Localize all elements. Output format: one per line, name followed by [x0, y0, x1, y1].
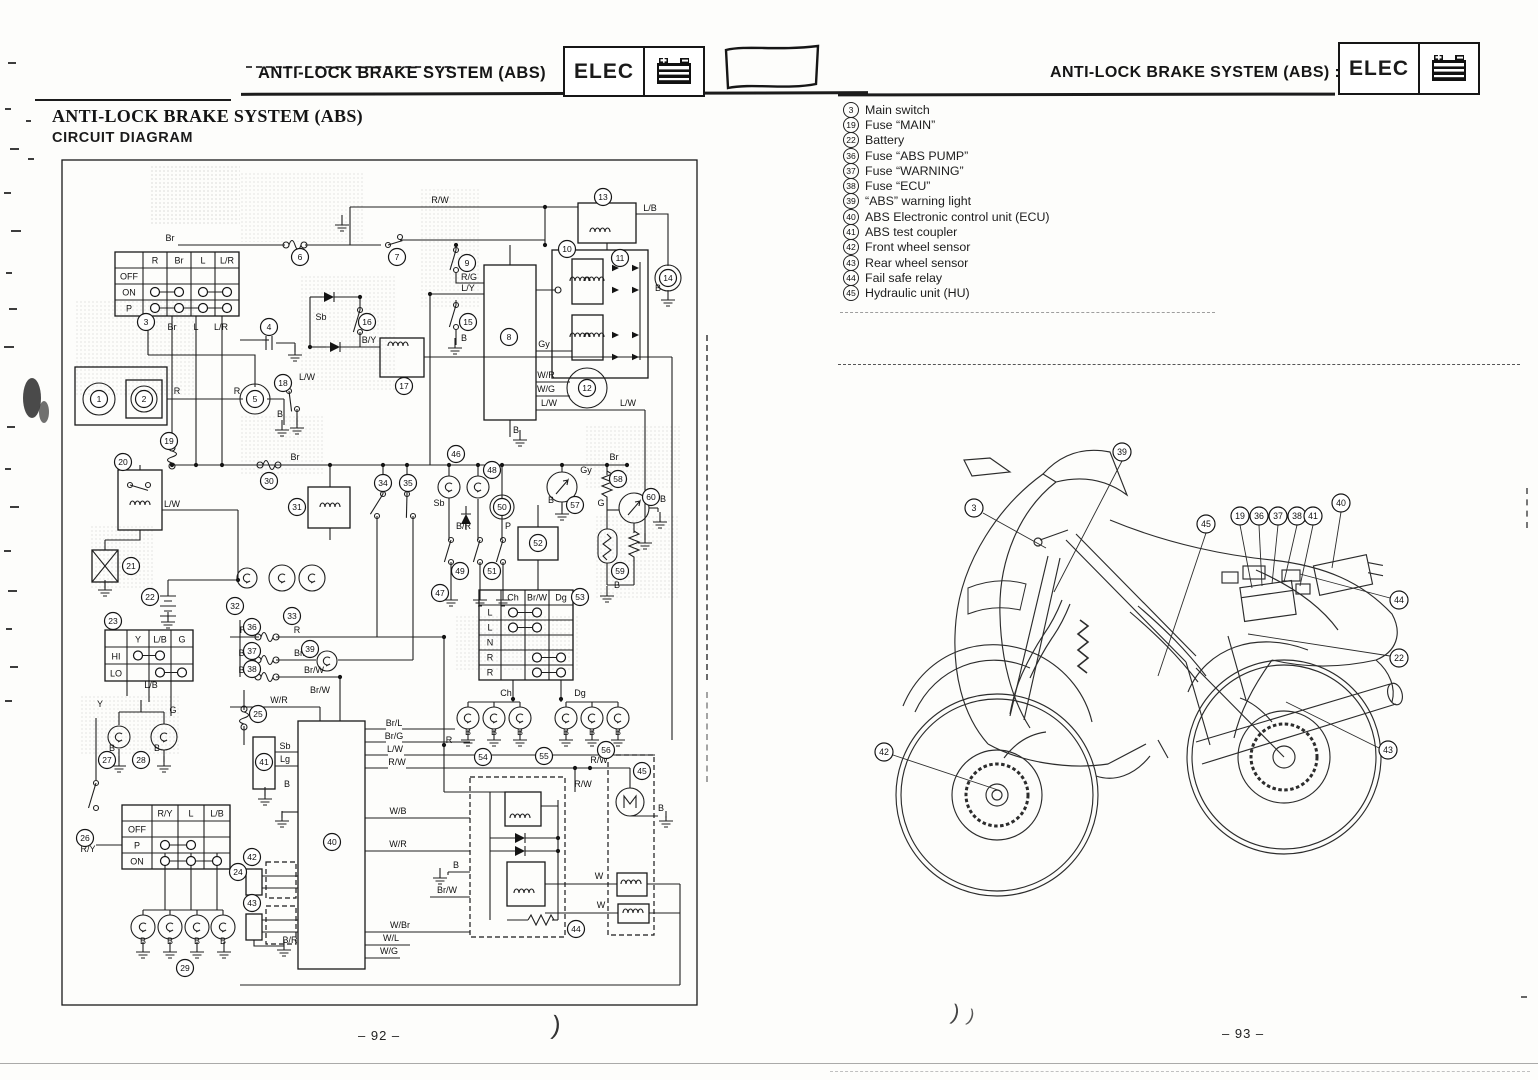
callout-25: 25: [250, 706, 267, 723]
wire-label: Br: [166, 233, 175, 243]
callout-26: 26: [77, 830, 94, 847]
svg-text:5: 5: [253, 394, 258, 404]
svg-text:L/B: L/B: [153, 635, 167, 645]
wire-label: R/G: [461, 272, 477, 282]
moto-callout-3: 3: [965, 499, 983, 517]
callout-8: 8: [501, 329, 518, 346]
callout-1: 1: [91, 391, 108, 408]
wire-label: W/R: [537, 370, 555, 380]
svg-text:L: L: [487, 608, 492, 618]
svg-text:32: 32: [230, 601, 240, 611]
wire-label: Br/W: [310, 685, 331, 695]
moto-callouts: 3934519363738414044224243: [875, 443, 1408, 761]
svg-text:39: 39: [1117, 447, 1127, 457]
legend-item: 45Hydraulic unit (HU): [843, 286, 1050, 301]
svg-text:54: 54: [478, 752, 488, 762]
separator-dashed: [838, 364, 1520, 365]
svg-text:44: 44: [1394, 595, 1404, 605]
right-header-rule: [838, 93, 1335, 96]
wire-label: L/W: [541, 398, 558, 408]
circuit-diagram: RBrLL/ROFFONPYL/BGHILOR/YLL/BOFFPONChBr/…: [55, 153, 705, 1013]
wire-label: B/Y: [362, 335, 377, 345]
svg-text:40: 40: [327, 837, 337, 847]
callout-24: 24: [230, 864, 247, 881]
legend-item-label: “ABS” warning light: [865, 194, 971, 208]
callout-37: 37: [244, 643, 261, 660]
svg-text:40: 40: [1336, 498, 1346, 508]
callout-34: 34: [375, 475, 392, 492]
wire-label: R/W: [431, 195, 449, 205]
left-header-title: ANTI-LOCK BRAKE SYSTEM (ABS): [258, 64, 546, 83]
callout-4: 4: [261, 319, 278, 336]
svg-text:R/Y: R/Y: [157, 809, 172, 819]
wire-label: R: [446, 735, 453, 745]
wire-label: B: [548, 495, 554, 505]
moto-callout-36: 36: [1250, 507, 1268, 525]
wire-label: L/W: [299, 372, 316, 382]
svg-text:37: 37: [1273, 511, 1283, 521]
svg-text:47: 47: [435, 588, 445, 598]
svg-text:51: 51: [487, 566, 497, 576]
svg-text:42: 42: [247, 852, 257, 862]
legend-item-label: Fuse “MAIN”: [865, 118, 935, 132]
elec-label: ELEC: [1340, 44, 1420, 93]
callout-58: 58: [610, 471, 627, 488]
legend-item-label: ABS test coupler: [865, 225, 957, 239]
legend-item: 39“ABS” warning light: [843, 194, 1050, 209]
callout-32: 32: [227, 598, 244, 615]
wire-label: Ch: [500, 688, 512, 698]
callout-59: 59: [612, 563, 629, 580]
wire-label: G: [169, 705, 176, 715]
svg-text:11: 11: [616, 253, 625, 263]
connector-table: YL/BGHILO: [105, 630, 193, 681]
wire-label: Gy: [538, 339, 550, 349]
moto-callout-22: 22: [1390, 649, 1408, 667]
callout-22: 22: [142, 589, 159, 606]
svg-text:46: 46: [451, 449, 461, 459]
moto-callout-44: 44: [1390, 591, 1408, 609]
wire-label: L/Y: [461, 283, 475, 293]
wire-label: Br/W: [304, 665, 325, 675]
svg-text:43: 43: [1383, 745, 1393, 755]
elec-label: ELEC: [565, 48, 645, 95]
svg-text:Y: Y: [135, 635, 141, 645]
svg-text:45: 45: [637, 766, 647, 776]
callout-11: 11: [612, 250, 629, 267]
svg-text:22: 22: [1394, 653, 1404, 663]
svg-text:26: 26: [80, 833, 90, 843]
svg-text:9: 9: [465, 258, 470, 268]
legend-item-number: 19: [843, 117, 859, 133]
callout-27: 27: [99, 752, 116, 769]
legend-item-label: ABS Electronic control unit (ECU): [865, 210, 1050, 224]
connector-table: ChBr/WDgLLNRR: [479, 590, 573, 680]
svg-text:25: 25: [253, 709, 263, 719]
page-fold-marks: [706, 692, 708, 782]
svg-text:20: 20: [118, 457, 128, 467]
wire-label: B: [154, 743, 160, 753]
svg-text:38: 38: [1292, 511, 1302, 521]
wire-label: B: [167, 936, 173, 946]
wire-label: W: [597, 900, 606, 910]
svg-text:6: 6: [298, 252, 303, 262]
svg-text:27: 27: [102, 755, 112, 765]
svg-text:OFF: OFF: [128, 825, 146, 835]
svg-text:P: P: [126, 304, 132, 314]
wire-label: B: [277, 409, 283, 419]
wire-label: B: [589, 727, 595, 737]
wire-label: B: [140, 936, 146, 946]
svg-text:41: 41: [259, 757, 269, 767]
callout-36: 36: [244, 619, 261, 636]
svg-text:24: 24: [233, 867, 243, 877]
left-header-rule-2: [35, 99, 231, 101]
wire-label: B: [563, 727, 569, 737]
wire-label: R: [294, 625, 301, 635]
manual-spread: { "page_left": { "header_title": "ANTI-L…: [0, 0, 1538, 1080]
wire-label: B: [658, 803, 664, 813]
legend-item-label: Rear wheel sensor: [865, 256, 968, 270]
svg-text:L/R: L/R: [220, 256, 235, 266]
legend-item: 42Front wheel sensor: [843, 240, 1050, 255]
page-title: ANTI-LOCK BRAKE SYSTEM (ABS): [52, 106, 363, 127]
callout-49: 49: [452, 563, 469, 580]
callout-20: 20: [115, 454, 132, 471]
svg-text:33: 33: [287, 611, 297, 621]
svg-text:R: R: [487, 668, 494, 678]
svg-text:49: 49: [455, 566, 465, 576]
wire-label: B: [465, 727, 471, 737]
svg-text:53: 53: [575, 592, 585, 602]
svg-text:LO: LO: [110, 669, 122, 679]
svg-text:34: 34: [378, 478, 388, 488]
moto-callout-38: 38: [1288, 507, 1306, 525]
svg-text:14: 14: [663, 273, 673, 283]
legend-item-number: 39: [843, 193, 859, 209]
callout-33: 33: [284, 608, 301, 625]
wire-label: R/W: [388, 757, 406, 767]
svg-text:36: 36: [1254, 511, 1264, 521]
legend-item-number: 41: [843, 224, 859, 240]
svg-text:10: 10: [562, 244, 572, 254]
svg-text:15: 15: [463, 317, 473, 327]
svg-text:L: L: [188, 809, 193, 819]
wire-label: Sb: [279, 741, 290, 751]
callout-44: 44: [568, 921, 585, 938]
svg-text:50: 50: [497, 502, 507, 512]
svg-text:59: 59: [615, 566, 625, 576]
svg-text:Br: Br: [175, 256, 184, 266]
svg-text:17: 17: [399, 381, 409, 391]
svg-text:Br/W: Br/W: [527, 593, 548, 603]
callout-53: 53: [572, 589, 589, 606]
callout-35: 35: [400, 475, 417, 492]
legend-item-label: Fuse “ECU”: [865, 179, 930, 193]
svg-text:37: 37: [247, 646, 257, 656]
svg-text:60: 60: [646, 492, 656, 502]
svg-text:31: 31: [292, 502, 302, 512]
moto-callout-40: 40: [1332, 494, 1350, 512]
moto-callout-19: 19: [1231, 507, 1249, 525]
wire-label: L: [193, 322, 198, 332]
svg-text:L: L: [200, 256, 205, 266]
callout-19: 19: [161, 433, 178, 450]
wire-label: L/B: [144, 680, 158, 690]
svg-text:3: 3: [144, 317, 149, 327]
moto-callout-45: 45: [1197, 515, 1215, 533]
scan-margin-marks: [0, 50, 58, 750]
moto-callout-41: 41: [1304, 507, 1322, 525]
wire-label: B: [461, 333, 467, 343]
wire-label: B: [284, 779, 290, 789]
wire-label: B/R: [456, 521, 472, 531]
moto-callout-37: 37: [1269, 507, 1287, 525]
wire-label: R/W: [574, 779, 592, 789]
svg-text:23: 23: [108, 616, 118, 626]
wire-label: Br/W: [437, 885, 458, 895]
connector-table: RBrLL/ROFFONP: [115, 252, 239, 316]
connector-table: R/YLL/BOFFPON: [122, 805, 230, 869]
scan-stray-mark: ): [550, 1010, 563, 1042]
callout-39: 39: [302, 641, 319, 658]
svg-text:R: R: [152, 256, 159, 266]
legend-item-number: 45: [843, 285, 859, 301]
legend-item: 44Fail safe relay: [843, 270, 1050, 285]
svg-text:ON: ON: [122, 288, 136, 298]
svg-text:58: 58: [613, 474, 623, 484]
wire-label: Sb: [433, 498, 444, 508]
wire-label: W/B: [390, 806, 407, 816]
legend-item-label: Battery: [865, 133, 904, 147]
svg-text:1: 1: [97, 394, 102, 404]
bottom-scan-dashes: [830, 1071, 1530, 1072]
callout-16: 16: [359, 314, 376, 331]
callout-47: 47: [432, 585, 449, 602]
svg-text:P: P: [134, 841, 140, 851]
svg-text:R: R: [487, 653, 494, 663]
bottom-scan-rule: [0, 1063, 1538, 1064]
wire-label: B: [194, 936, 200, 946]
callout-60: 60: [643, 489, 660, 506]
legend-item-label: Fuse “ABS PUMP”: [865, 149, 968, 163]
svg-text:HI: HI: [112, 652, 121, 662]
callout-46: 46: [448, 446, 465, 463]
wire-label: G: [597, 498, 604, 508]
svg-text:36: 36: [247, 622, 257, 632]
svg-text:57: 57: [570, 500, 580, 510]
svg-text:30: 30: [264, 476, 274, 486]
callout-55: 55: [536, 748, 553, 765]
wire-label: Br: [610, 452, 619, 462]
svg-text:19: 19: [164, 436, 174, 446]
legend-item: 37Fuse “WARNING”: [843, 163, 1050, 178]
svg-text:35: 35: [403, 478, 413, 488]
svg-text:56: 56: [601, 745, 611, 755]
callout-38: 38: [244, 661, 261, 678]
svg-text:8: 8: [507, 332, 512, 342]
wire-label: B/R: [282, 935, 298, 945]
wire-label: B: [513, 425, 519, 435]
svg-text:N: N: [487, 638, 494, 648]
callout-29: 29: [177, 960, 194, 977]
wire-label: L/W: [387, 744, 404, 754]
wire-label: B: [655, 283, 661, 293]
legend-item-number: 40: [843, 209, 859, 225]
wire-label: L/R: [214, 322, 229, 332]
scan-edge-marks: [1526, 488, 1531, 528]
svg-text:41: 41: [1308, 511, 1318, 521]
callout-13: 13: [595, 189, 612, 206]
callout-45: 45: [634, 763, 651, 780]
battery-icon: [1420, 44, 1478, 93]
legend-item-label: Hydraulic unit (HU): [865, 286, 970, 300]
callout-56: 56: [598, 742, 615, 759]
callout-5: 5: [247, 391, 264, 408]
wire-label: B: [491, 727, 497, 737]
wire-label: B: [615, 727, 621, 737]
legend-item-number: 37: [843, 163, 859, 179]
legend-item-number: 43: [843, 255, 859, 271]
legend-item: 22Battery: [843, 133, 1050, 148]
callout-15: 15: [460, 314, 477, 331]
legend-item-number: 3: [843, 102, 859, 118]
svg-text:29: 29: [180, 963, 190, 973]
legend-item: 3Main switch: [843, 102, 1050, 117]
svg-text:2: 2: [142, 394, 147, 404]
right-header-title: ANTI-LOCK BRAKE SYSTEM (ABS) :: [1050, 64, 1340, 82]
callout-14: 14: [660, 270, 677, 287]
svg-text:22: 22: [145, 592, 155, 602]
wire-label: L/W: [164, 499, 181, 509]
wire-label: R: [174, 386, 181, 396]
callout-2: 2: [136, 391, 153, 408]
scan-stray-mark: ): [965, 1006, 978, 1028]
battery-icon: [645, 48, 703, 95]
scan-edge-marks: [1521, 996, 1527, 998]
wire-label: B: [660, 494, 666, 504]
wire-label: Y: [97, 699, 103, 709]
wire-label: Br: [168, 322, 177, 332]
left-page-number: – 92 –: [358, 1028, 400, 1043]
wire-label: R: [234, 386, 241, 396]
legend-item-label: Fuse “WARNING”: [865, 164, 964, 178]
callout-57: 57: [567, 497, 584, 514]
svg-text:ON: ON: [130, 857, 144, 867]
wire-label: Dg: [574, 688, 586, 698]
callout-42: 42: [244, 849, 261, 866]
page-fold-marks: [706, 335, 708, 680]
legend-item: 40ABS Electronic control unit (ECU): [843, 209, 1050, 224]
wire-label: Lg: [280, 754, 290, 764]
svg-text:43: 43: [247, 898, 257, 908]
motorcycle-illustration: 3934519363738414044224243: [858, 420, 1424, 940]
legend-item-number: 36: [843, 148, 859, 164]
wire-label: W/Br: [390, 920, 410, 930]
svg-text:12: 12: [582, 383, 592, 393]
wire-label: B: [517, 727, 523, 737]
wire-label: Br/G: [385, 731, 404, 741]
svg-text:38: 38: [247, 664, 257, 674]
wire-label: L/W: [620, 398, 637, 408]
legend-item-number: 42: [843, 239, 859, 255]
wire-label: B: [453, 860, 459, 870]
right-page-number: – 93 –: [1222, 1026, 1264, 1041]
separator-dashed-partial: [840, 312, 1215, 313]
wire-label: W: [595, 871, 604, 881]
svg-text:39: 39: [305, 644, 315, 654]
svg-text:Dg: Dg: [555, 593, 567, 603]
legend-item-label: Front wheel sensor: [865, 240, 970, 254]
wire-label: B: [614, 580, 620, 590]
svg-text:19: 19: [1235, 511, 1245, 521]
svg-text:L: L: [487, 623, 492, 633]
svg-text:13: 13: [598, 192, 608, 202]
wire-label: P: [505, 521, 511, 531]
legend-item: 38Fuse “ECU”: [843, 178, 1050, 193]
legend-item: 36Fuse “ABS PUMP”: [843, 148, 1050, 163]
wire-label: Br: [291, 452, 300, 462]
callout-43: 43: [244, 895, 261, 912]
svg-text:18: 18: [278, 378, 288, 388]
svg-text:52: 52: [533, 538, 543, 548]
page-subtitle: CIRCUIT DIAGRAM: [52, 130, 193, 146]
callout-12: 12: [579, 380, 596, 397]
wire-label: L/B: [643, 203, 657, 213]
callout-41: 41: [256, 754, 273, 771]
wire-label: Br/L: [386, 718, 403, 728]
svg-text:45: 45: [1201, 519, 1211, 529]
svg-text:OFF: OFF: [120, 272, 138, 282]
wire-label: Sb: [315, 312, 326, 322]
svg-text:L/B: L/B: [210, 809, 224, 819]
callout-40: 40: [324, 834, 341, 851]
wire-label: W/R: [270, 695, 288, 705]
callout-7: 7: [389, 249, 406, 266]
svg-text:G: G: [178, 635, 185, 645]
callout-23: 23: [105, 613, 122, 630]
legend-item: 43Rear wheel sensor: [843, 255, 1050, 270]
callout-28: 28: [133, 752, 150, 769]
legend-item: 19Fuse “MAIN”: [843, 117, 1050, 132]
svg-text:16: 16: [362, 317, 372, 327]
wire-label: W/R: [389, 839, 407, 849]
moto-callout-39: 39: [1113, 443, 1131, 461]
callout-30: 30: [261, 473, 278, 490]
legend-item-label: Fail safe relay: [865, 271, 942, 285]
callout-50: 50: [494, 499, 511, 516]
callout-17: 17: [396, 378, 413, 395]
legend-item: 41ABS test coupler: [843, 224, 1050, 239]
callout-21: 21: [123, 558, 140, 575]
svg-text:42: 42: [879, 747, 889, 757]
moto-callout-43: 43: [1379, 741, 1397, 759]
callout-52: 52: [530, 535, 547, 552]
circuit-wires: [75, 203, 680, 985]
callout-31: 31: [289, 499, 306, 516]
callout-48: 48: [484, 462, 501, 479]
legend-item-number: 44: [843, 270, 859, 286]
moto-callout-42: 42: [875, 743, 893, 761]
svg-text:48: 48: [487, 465, 497, 475]
svg-text:Ch: Ch: [507, 593, 519, 603]
wire-label: W/G: [380, 946, 398, 956]
callout-51: 51: [484, 563, 501, 580]
wire-label: B: [220, 936, 226, 946]
callout-9: 9: [459, 255, 476, 272]
wire-label: W/L: [383, 933, 399, 943]
callout-54: 54: [475, 749, 492, 766]
